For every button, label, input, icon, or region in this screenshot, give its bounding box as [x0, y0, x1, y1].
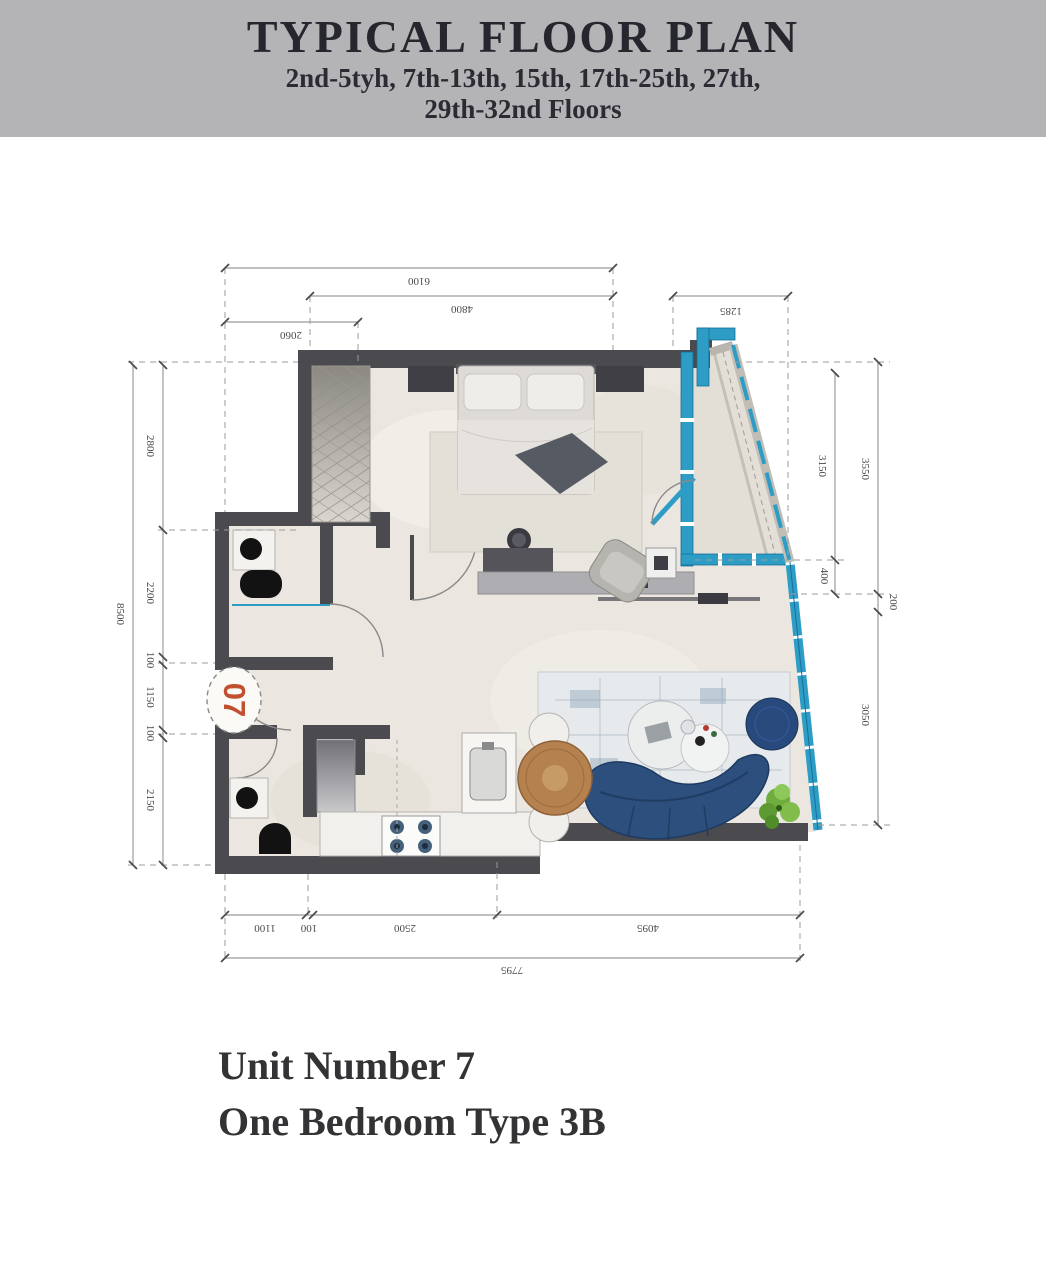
dim-right-outer: 3050	[858, 693, 872, 737]
unit-caption-line1: Unit Number 7	[218, 1038, 606, 1094]
dim-right-outer: 200	[886, 580, 900, 624]
dim-top-right: 1285	[709, 304, 753, 318]
dim-right-inner: 3150	[815, 444, 829, 488]
dim-bottom-seg: 4095	[626, 921, 670, 935]
dim-right-inner: 400	[817, 554, 831, 598]
dim-left-seg: 2150	[143, 778, 157, 822]
dim-left-seg: 2800	[143, 424, 157, 468]
unit-number-label: 07	[206, 672, 262, 728]
unit-caption-line2: One Bedroom Type 3B	[218, 1094, 606, 1150]
dim-bottom-total: 7795	[490, 963, 534, 977]
service-shaft	[317, 740, 355, 812]
dim-top-total: 6100	[397, 274, 441, 288]
dim-left-total: 8500	[113, 592, 127, 636]
dim-bottom-seg: 100	[287, 921, 331, 935]
dim-top-left: 2060	[269, 328, 313, 342]
dim-right-outer: 3550	[858, 447, 872, 491]
dim-left-seg: 2200	[143, 571, 157, 615]
dim-left-seg: 100	[143, 711, 157, 755]
dim-bottom-seg: 1100	[243, 921, 287, 935]
dim-top-main: 4800	[440, 302, 484, 316]
wardrobe-closet	[312, 366, 370, 522]
unit-caption: Unit Number 7 One Bedroom Type 3B	[218, 1038, 606, 1150]
dim-bottom-seg: 2500	[383, 921, 427, 935]
floor-plan-page: TYPICAL FLOOR PLAN 2nd-5tyh, 7th-13th, 1…	[0, 0, 1046, 1281]
pouf	[746, 698, 798, 750]
